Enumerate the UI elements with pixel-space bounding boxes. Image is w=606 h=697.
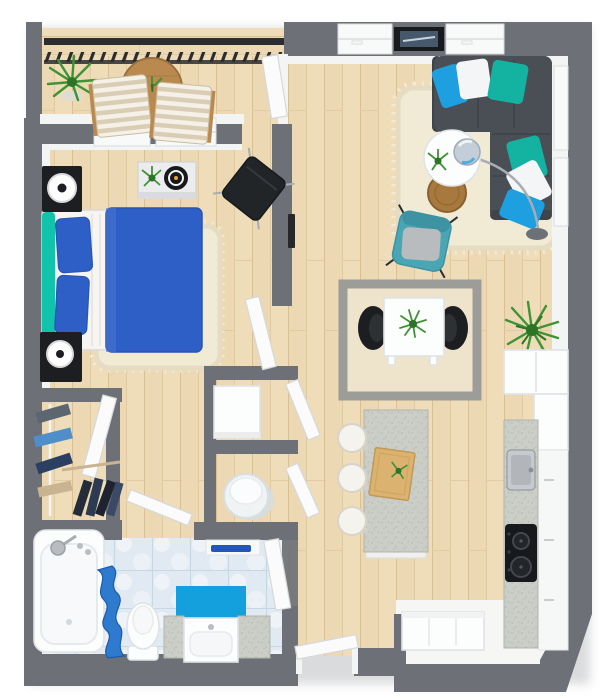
tub-drain xyxy=(66,619,72,625)
closet-block-mid-wall xyxy=(216,440,298,454)
toilet xyxy=(127,603,159,660)
dresser xyxy=(138,162,196,199)
window-latch xyxy=(462,41,472,44)
teal-headboard xyxy=(42,212,55,348)
bar-stool-3 xyxy=(338,507,366,535)
balcony-left-wall xyxy=(26,22,42,120)
chair-left-seat xyxy=(369,314,385,342)
nook-bottom-wall xyxy=(394,664,544,692)
tall-cabinet-pantry xyxy=(534,394,568,450)
floor-plan-svg xyxy=(0,0,606,697)
entry-jamb-right xyxy=(352,648,358,674)
double-bed xyxy=(42,208,202,352)
lamp-center xyxy=(58,184,67,193)
lounge-chair-left xyxy=(88,74,156,138)
lamp-center xyxy=(56,350,64,358)
blue-towel xyxy=(211,545,251,552)
speaker-center xyxy=(174,176,178,180)
tub-basin xyxy=(41,544,97,644)
basket-lid xyxy=(230,478,262,504)
cooktop-knob xyxy=(507,568,510,571)
armchair-cushion xyxy=(401,227,441,262)
blue-duvet xyxy=(106,208,202,352)
right-wall-window-2 xyxy=(554,158,568,226)
sink-faucet xyxy=(529,468,534,473)
right-wall xyxy=(568,58,592,614)
bathtub xyxy=(34,530,104,652)
tap-knob xyxy=(85,549,91,555)
cabinet-front-edge xyxy=(214,432,260,438)
living-window-2 xyxy=(446,24,504,54)
bar-stools xyxy=(338,424,368,535)
cooktop-knob xyxy=(507,550,510,553)
entry-side-wall xyxy=(354,648,396,676)
vanity-counter-left xyxy=(164,616,184,658)
plant-pot xyxy=(61,91,83,101)
bar-stool-1 xyxy=(338,424,366,452)
cooktop-knob xyxy=(507,532,510,535)
bathroom-bottom-wall xyxy=(24,654,298,686)
right-wall-window-1 xyxy=(554,66,568,150)
dresser-front-edge xyxy=(138,192,196,199)
bar-stool-2 xyxy=(338,464,366,492)
living-window-1 xyxy=(338,24,392,54)
storage-bench xyxy=(402,612,484,650)
window-latch xyxy=(352,41,362,44)
pillow-teal-1 xyxy=(487,59,529,105)
floor-plan-screenshot xyxy=(0,0,606,697)
toilet-seat xyxy=(133,606,153,634)
closet-storage-cabinet xyxy=(214,386,260,438)
vanity-faucet xyxy=(208,624,214,630)
bench-top-edge xyxy=(402,612,484,618)
vanity-counter-right xyxy=(238,616,270,658)
blue-pillow-2 xyxy=(55,275,90,335)
duvet-fold-highlight xyxy=(106,208,116,352)
railing-top-rail xyxy=(44,38,284,45)
arc-lamp-base xyxy=(526,228,548,240)
cooktop xyxy=(505,524,537,582)
pillow-white-1 xyxy=(456,58,493,100)
kitchen-island xyxy=(364,410,428,558)
round-coffee-table xyxy=(424,130,480,186)
shower-head xyxy=(51,541,65,555)
tap-knob xyxy=(77,543,83,549)
blue-pillow-1 xyxy=(55,217,93,273)
serving-tray xyxy=(369,447,415,500)
lounge-chair-right xyxy=(149,82,216,145)
kitchen-sink xyxy=(507,450,535,490)
wall-tv-edge xyxy=(288,214,295,248)
towel-shelf xyxy=(206,540,260,555)
sink-basin xyxy=(190,632,232,656)
closet-block-top-wall xyxy=(204,366,298,380)
palm-core xyxy=(67,77,77,87)
